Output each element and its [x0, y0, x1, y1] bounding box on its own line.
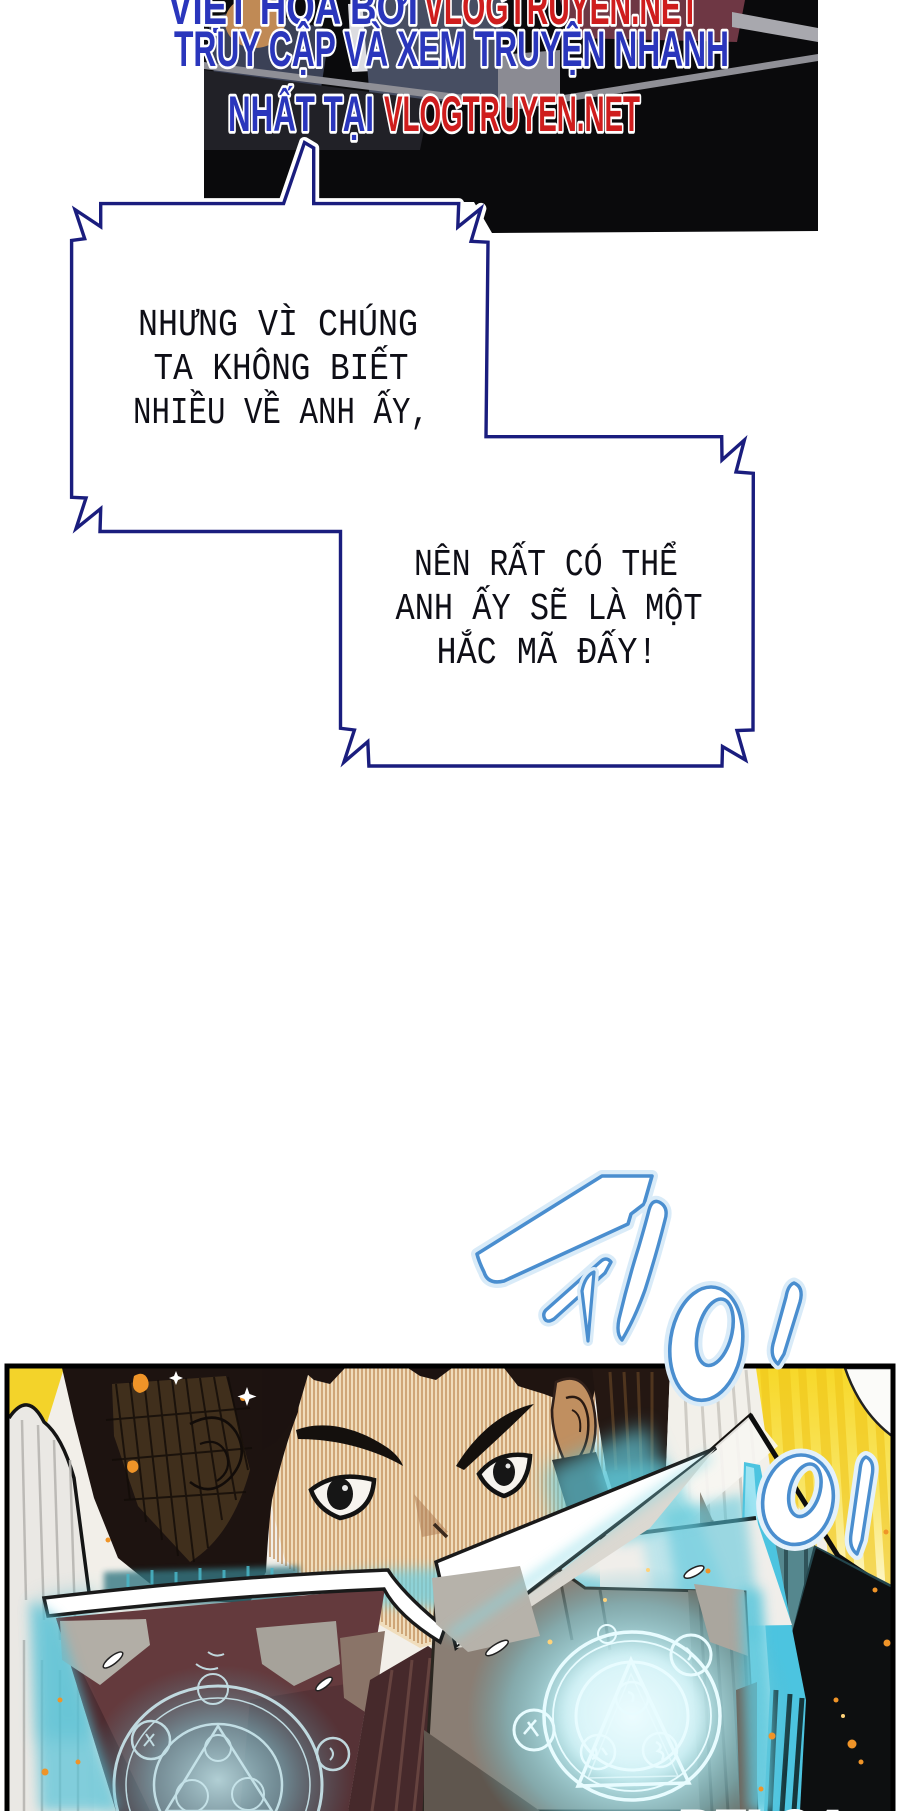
svg-text:TRUY CẬP VÀ XEM TRUYỆN NHANH: TRUY CẬP VÀ XEM TRUYỆN NHANH: [174, 21, 729, 77]
svg-text:NÊN RẤT CÓ THỂ: NÊN RẤT CÓ THỂ: [414, 539, 678, 587]
svg-text:ANH ẤY SẼ LÀ MỘT: ANH ẤY SẼ LÀ MỘT: [396, 584, 703, 631]
svg-text:VLOGTRUYEN.NET: VLOGTRUYEN.NET: [384, 86, 640, 142]
svg-text:TA KHÔNG BIẾT: TA KHÔNG BIẾT: [154, 344, 409, 391]
svg-text:NHIỀU VỀ ANH ẤY,: NHIỀU VỀ ANH ẤY,: [133, 388, 429, 435]
svg-text:HẮC MÃ ĐẤY!: HẮC MÃ ĐẤY!: [437, 628, 658, 675]
svg-text:NHẤT TẠI: NHẤT TẠI: [228, 86, 374, 142]
svg-text:NHƯNG VÌ CHÚNG: NHƯNG VÌ CHÚNG: [138, 302, 418, 347]
svg-text:RELOA: RELOA: [676, 1802, 847, 1811]
